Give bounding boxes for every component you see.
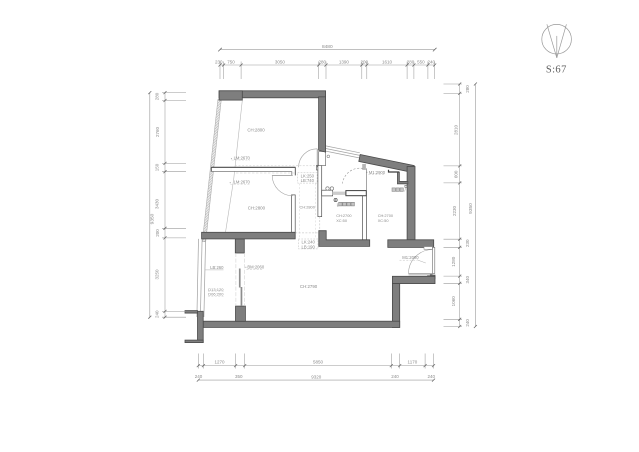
svg-text:2230: 2230: [452, 205, 457, 216]
svg-text:S:67: S:67: [546, 65, 567, 76]
svg-text:8480: 8480: [322, 44, 333, 50]
svg-text:340: 340: [465, 275, 470, 283]
svg-text:2810: 2810: [453, 124, 458, 135]
svg-text:2760: 2760: [155, 126, 160, 137]
svg-text:M1:2900: M1:2900: [369, 170, 386, 175]
svg-text:150: 150: [155, 163, 160, 171]
svg-text:240: 240: [465, 319, 470, 327]
svg-text:LB:260: LB:260: [210, 265, 224, 270]
svg-text:CH:2800: CH:2800: [248, 205, 266, 210]
svg-text:XC:50: XC:50: [336, 218, 348, 223]
svg-text:1270: 1270: [214, 360, 225, 365]
svg-text:230: 230: [465, 239, 470, 247]
svg-text:240: 240: [427, 374, 435, 379]
svg-text:1170: 1170: [408, 360, 418, 365]
svg-text:200: 200: [155, 229, 160, 237]
svg-text:1280: 1280: [451, 256, 456, 267]
svg-text:5850: 5850: [313, 360, 324, 365]
svg-text:240: 240: [155, 310, 160, 318]
svg-text:1610: 1610: [382, 59, 393, 64]
svg-text:D06:200: D06:200: [208, 291, 224, 296]
svg-text:9350: 9350: [468, 203, 474, 214]
svg-text:9320: 9320: [311, 374, 322, 379]
svg-text:LB:740: LB:740: [301, 178, 315, 183]
svg-text:LM:2670: LM:2670: [234, 155, 251, 160]
svg-text:CH:2800: CH:2800: [247, 128, 265, 133]
svg-text:280: 280: [407, 59, 415, 64]
svg-text:XC:50: XC:50: [378, 218, 390, 223]
svg-text:750: 750: [227, 59, 235, 64]
svg-text:9350: 9350: [150, 213, 156, 224]
svg-text:200: 200: [361, 59, 369, 64]
svg-text:LB:190: LB:190: [302, 244, 316, 249]
svg-text:240: 240: [391, 374, 399, 379]
svg-text:350: 350: [235, 374, 243, 379]
svg-text:240: 240: [428, 59, 436, 64]
svg-text:CH:2800: CH:2800: [300, 205, 316, 210]
svg-text:1390: 1390: [339, 59, 350, 64]
svg-text:3250: 3250: [155, 269, 160, 280]
svg-text:M1:2000: M1:2000: [402, 255, 419, 260]
svg-text:550: 550: [417, 59, 425, 64]
svg-text:600: 600: [453, 170, 458, 178]
svg-text:LM:2670: LM:2670: [234, 180, 251, 185]
svg-text:280: 280: [465, 85, 470, 93]
svg-text:280: 280: [155, 92, 160, 100]
svg-text:3430: 3430: [155, 198, 160, 209]
svg-text:230: 230: [215, 59, 223, 64]
svg-text:240: 240: [195, 374, 203, 379]
svg-text:280: 280: [319, 59, 327, 64]
svg-text:1060: 1060: [451, 296, 456, 307]
svg-text:BM:2060: BM:2060: [247, 265, 264, 270]
svg-text:3050: 3050: [275, 59, 286, 64]
svg-text:CH:2790: CH:2790: [300, 284, 318, 289]
